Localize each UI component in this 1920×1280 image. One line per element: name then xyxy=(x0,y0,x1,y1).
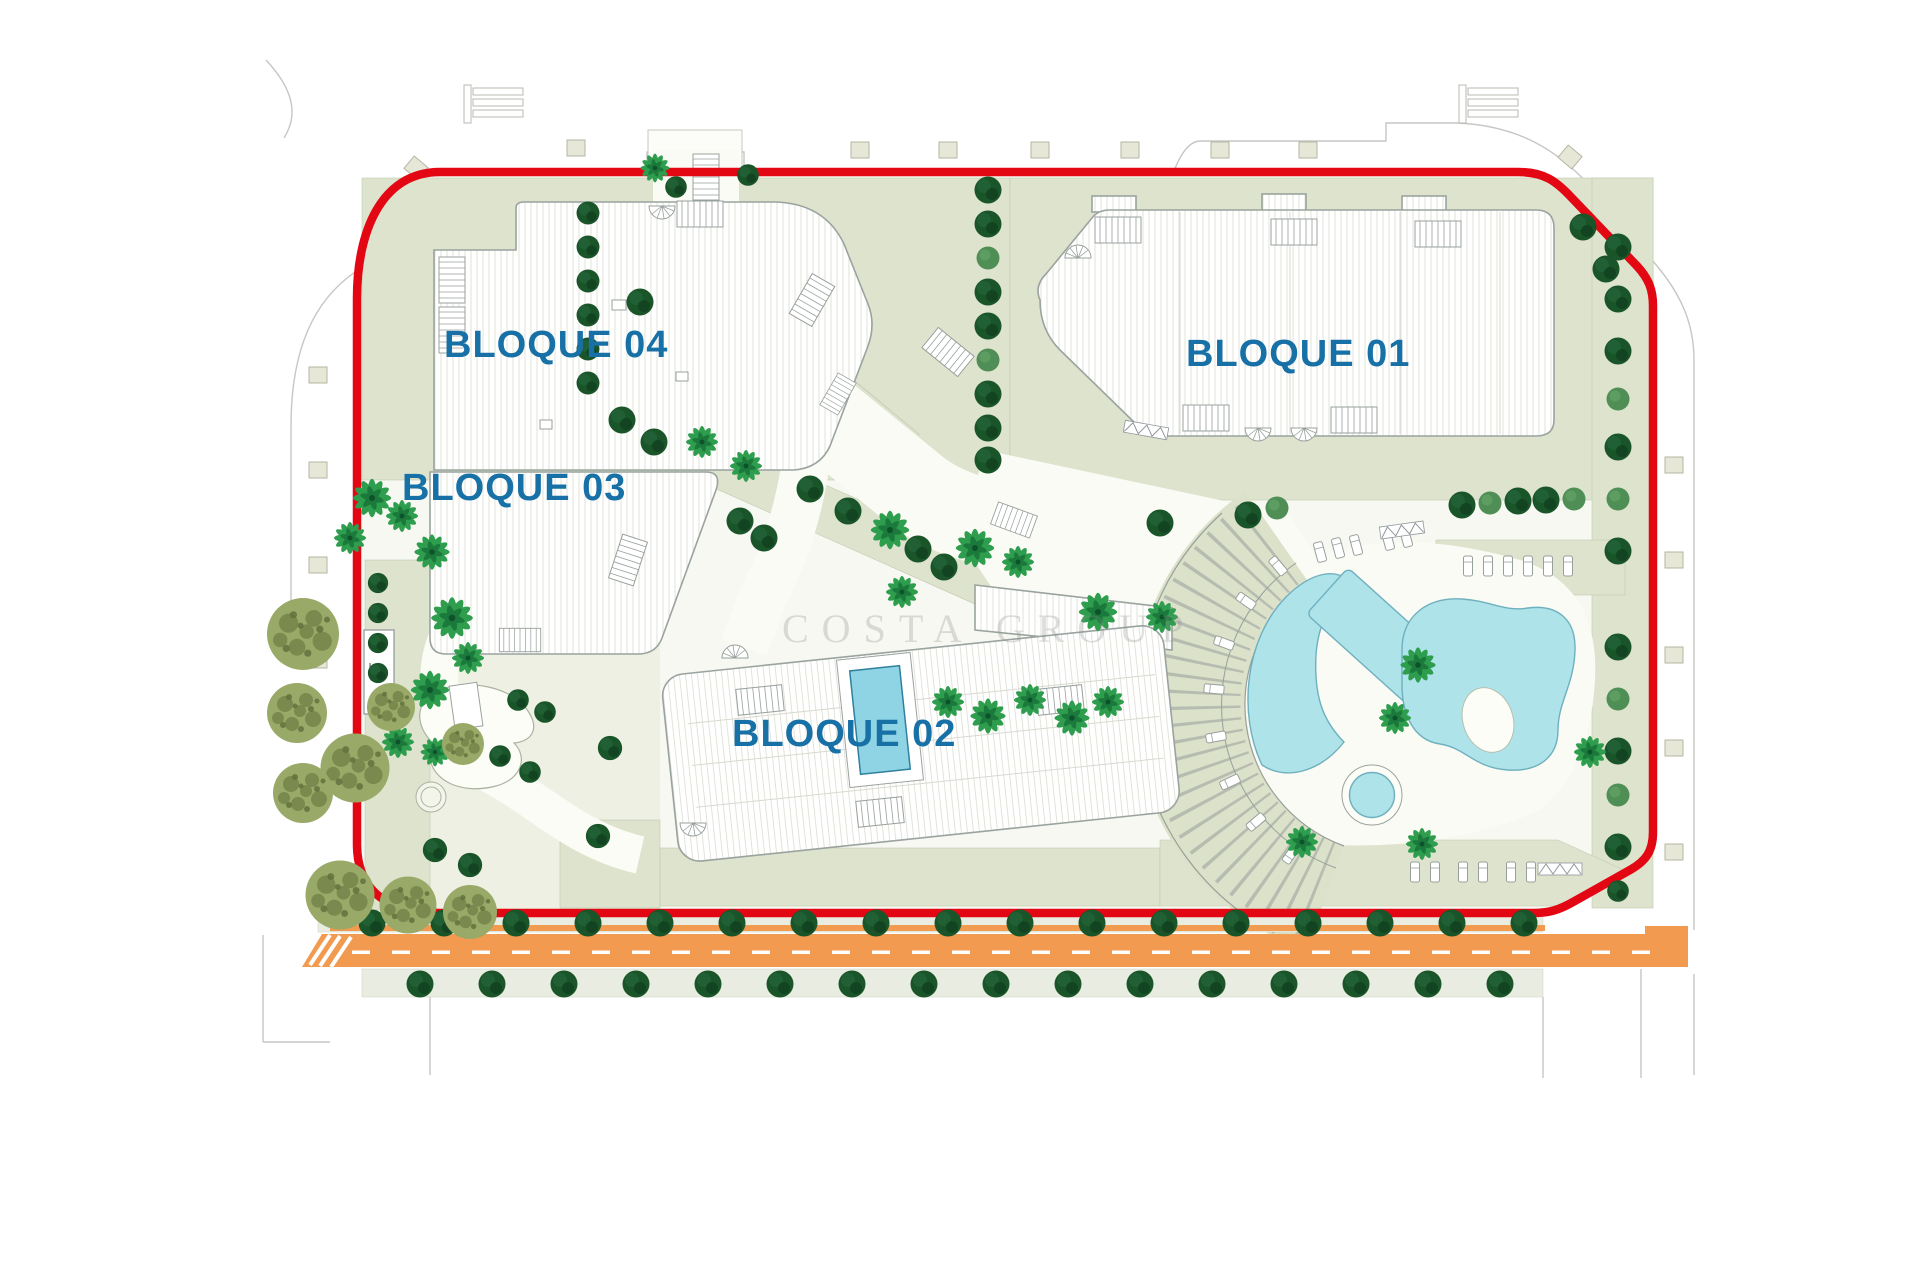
pergola-icon xyxy=(464,85,523,123)
pergola-icon xyxy=(1459,85,1518,123)
label-bloque-04: BLOQUE 04 xyxy=(444,324,668,366)
site-plan-image: CT xyxy=(0,0,1920,1280)
site-plan-svg: CT xyxy=(0,0,1920,1280)
garden-structure xyxy=(449,682,483,729)
round-pool xyxy=(1350,773,1395,818)
label-bloque-01: BLOQUE 01 xyxy=(1186,333,1410,375)
label-bloque-03: BLOQUE 03 xyxy=(402,467,626,509)
building-bloque-01 xyxy=(1038,194,1554,441)
watermark: COSTA GROUP xyxy=(782,606,1196,651)
label-bloque-02: BLOQUE 02 xyxy=(732,713,956,755)
